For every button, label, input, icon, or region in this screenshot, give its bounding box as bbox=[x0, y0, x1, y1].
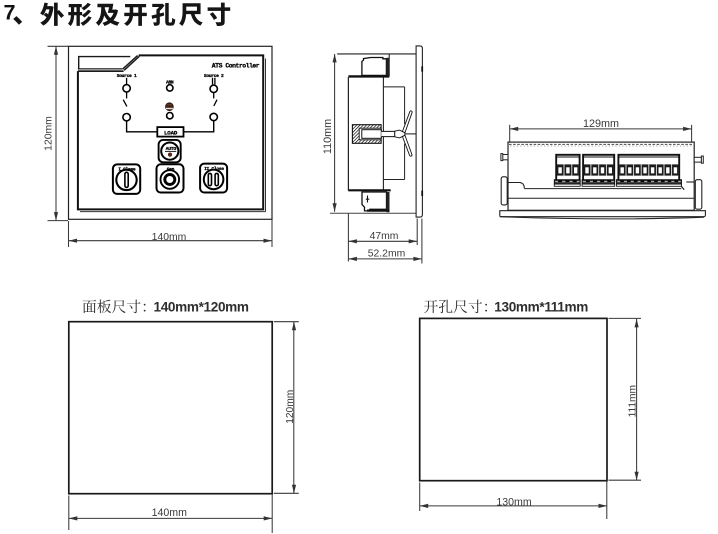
svg-text:ATS Controller: ATS Controller bbox=[212, 63, 260, 70]
svg-text:129mm: 129mm bbox=[583, 118, 619, 130]
svg-text:140mm*120mm: 140mm*120mm bbox=[154, 300, 249, 315]
svg-text:130mm: 130mm bbox=[496, 496, 531, 508]
svg-text:52.2mm: 52.2mm bbox=[368, 249, 406, 260]
svg-text:120mm: 120mm bbox=[44, 116, 55, 151]
svg-text:47mm: 47mm bbox=[370, 231, 399, 242]
svg-text:130mm*111mm: 130mm*111mm bbox=[494, 300, 588, 315]
svg-text:110mm: 110mm bbox=[322, 119, 334, 154]
svg-text:111mm: 111mm bbox=[628, 385, 639, 417]
svg-text:140mm: 140mm bbox=[152, 232, 187, 243]
svg-text:LOAD: LOAD bbox=[164, 129, 178, 136]
svg-text:Source 2: Source 2 bbox=[204, 73, 224, 79]
svg-text:7: 7 bbox=[4, 1, 16, 25]
svg-text:140mm: 140mm bbox=[152, 507, 187, 519]
svg-text:120mm: 120mm bbox=[285, 390, 296, 424]
